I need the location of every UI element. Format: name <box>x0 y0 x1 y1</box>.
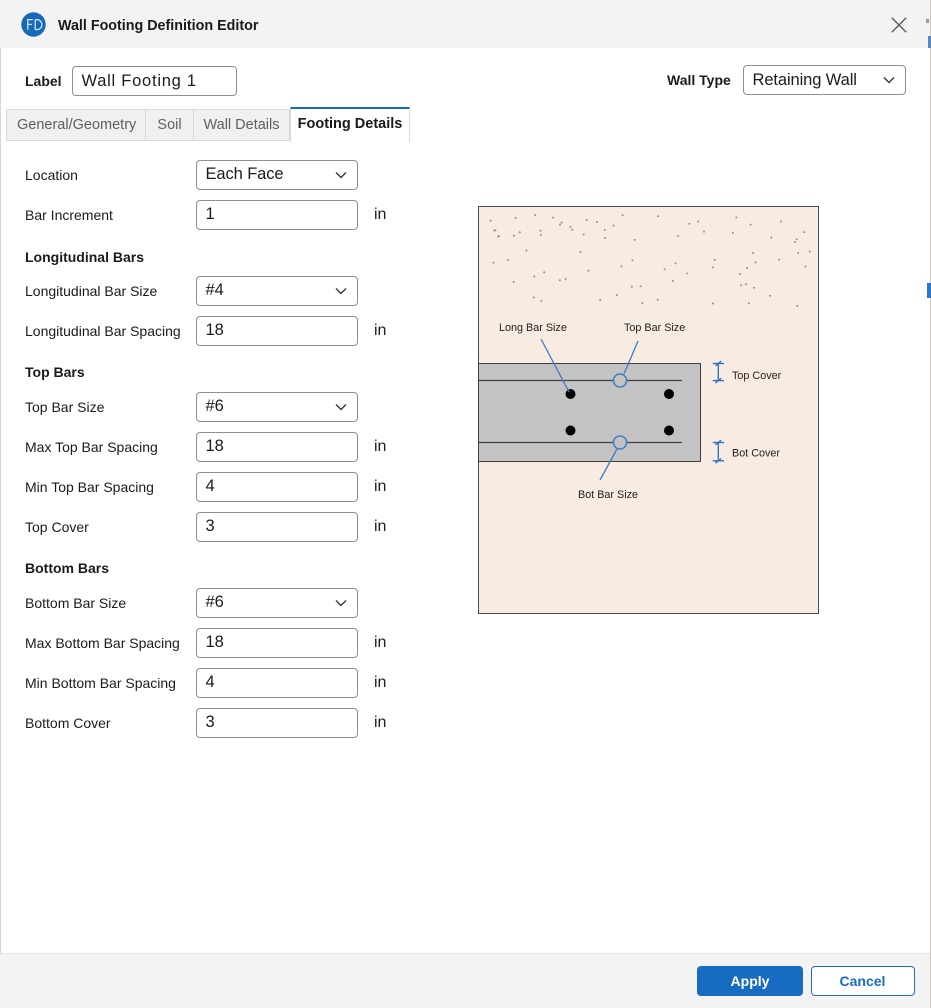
svg-text:Bot Cover: Bot Cover <box>732 448 780 460</box>
svg-text:Bot Bar Size: Bot Bar Size <box>578 489 638 501</box>
svg-text:Top Bar Size: Top Bar Size <box>624 322 685 334</box>
svg-text:Top Cover: Top Cover <box>732 370 782 382</box>
svg-text:Long Bar Size: Long Bar Size <box>499 322 567 334</box>
